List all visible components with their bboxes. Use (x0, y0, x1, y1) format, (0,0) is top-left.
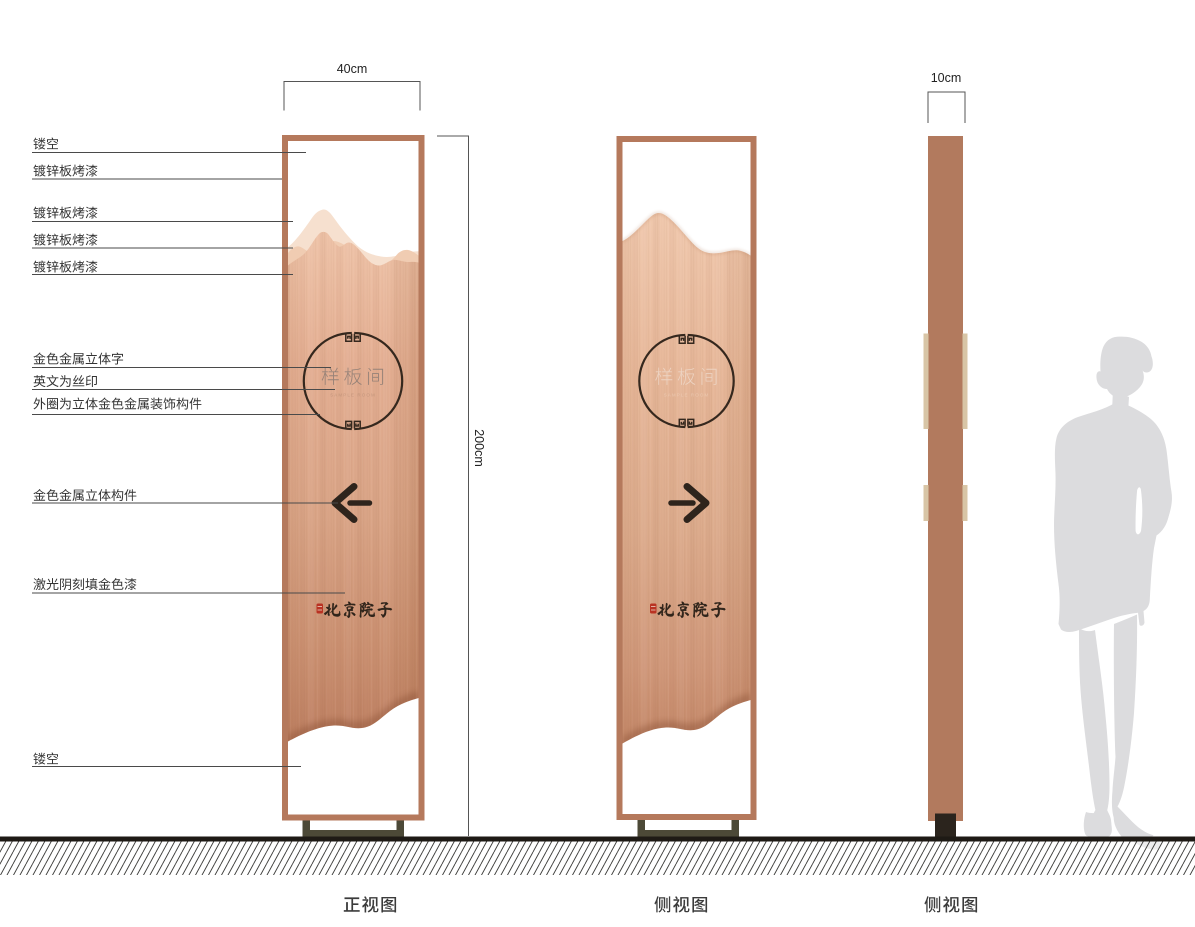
svg-text:200cm: 200cm (472, 429, 486, 467)
svg-text:40cm: 40cm (337, 62, 368, 76)
svg-text:SAMPLE ROOM: SAMPLE ROOM (330, 393, 376, 398)
svg-text:SAMPLE ROOM: SAMPLE ROOM (664, 393, 710, 398)
svg-text:10cm: 10cm (931, 71, 962, 85)
